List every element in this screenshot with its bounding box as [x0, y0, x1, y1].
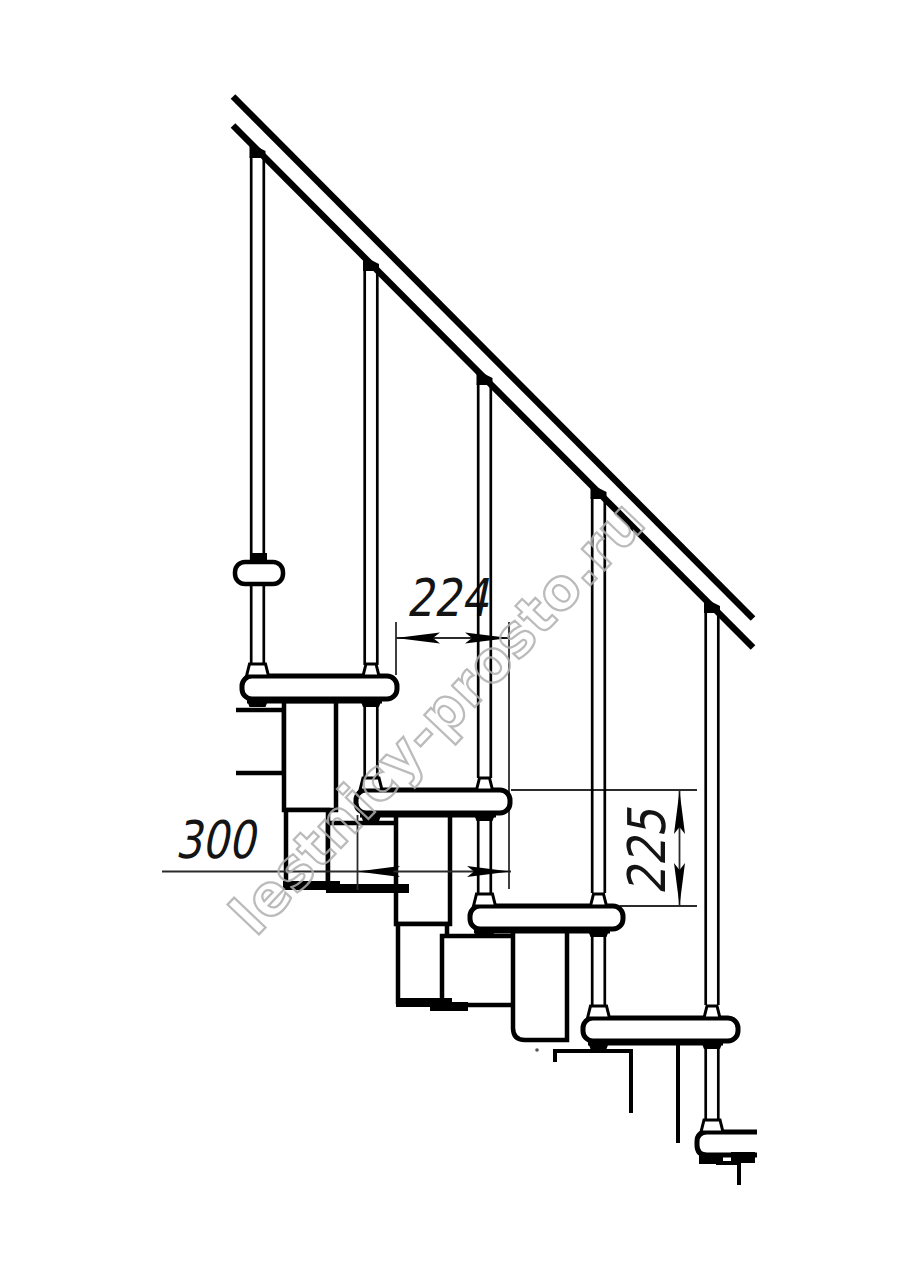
- handrail-top-edge: [233, 97, 753, 619]
- baluster-bracket: [235, 553, 283, 584]
- dim-label-300: 300: [175, 810, 258, 870]
- module-body-3: [398, 924, 447, 1002]
- upper-platform-edge: [236, 710, 284, 773]
- tread-4: [583, 1018, 738, 1041]
- module-riser-3: [513, 928, 567, 1040]
- speck-artifact: [535, 1048, 539, 1052]
- tread-1: [242, 676, 397, 699]
- baluster-1: [251, 156, 264, 664]
- handrail-bottom-edge: [233, 126, 753, 648]
- module-body-4: [442, 936, 518, 1005]
- tread-5: [697, 1132, 757, 1155]
- tread-3: [470, 906, 623, 929]
- staircase-drawing-page: 224 300 225: [0, 0, 914, 1280]
- module-riser-2: [396, 812, 450, 924]
- handrail: [233, 97, 753, 648]
- dim-label-225: 225: [617, 806, 677, 895]
- staircase-drawing: 224 300 225: [0, 0, 914, 1280]
